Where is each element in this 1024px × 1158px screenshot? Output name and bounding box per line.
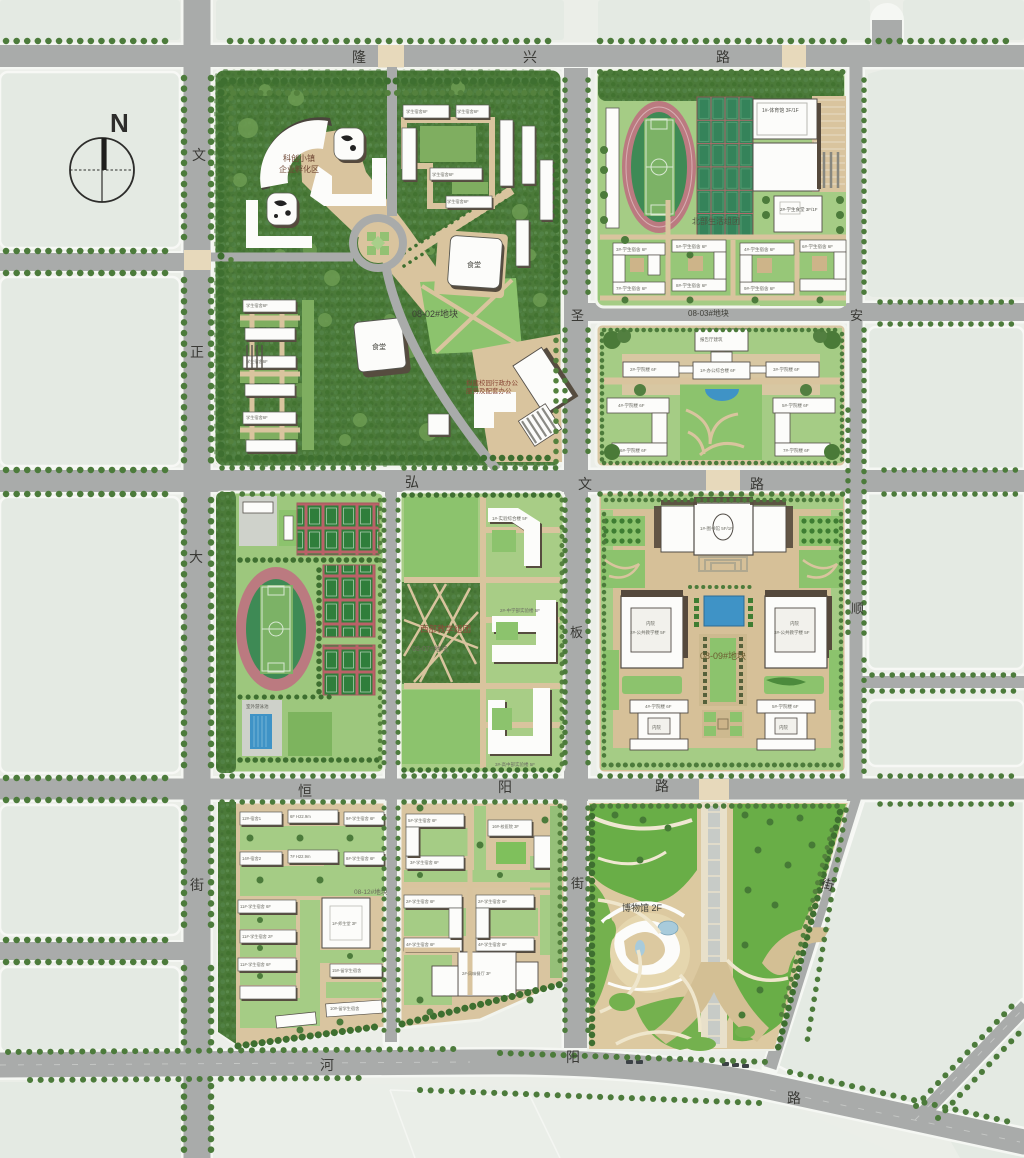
svg-text:4#-学生宿舍 6F: 4#-学生宿舍 6F bbox=[406, 941, 435, 948]
svg-text:隆: 隆 bbox=[352, 49, 366, 65]
svg-text:4#-学院楼 6F: 4#-学院楼 6F bbox=[618, 402, 645, 409]
svg-text:6F H22.9m: 6F H22.9m bbox=[290, 814, 311, 819]
svg-text:4#-学生宿舍 6F: 4#-学生宿舍 6F bbox=[744, 246, 775, 253]
svg-text:08-02#地块: 08-02#地块 bbox=[412, 308, 458, 319]
svg-text:08-07#地块: 08-07#地块 bbox=[412, 644, 448, 653]
svg-text:顺: 顺 bbox=[851, 601, 864, 616]
svg-text:报告厅建筑: 报告厅建筑 bbox=[700, 336, 723, 343]
svg-text:科创小镇: 科创小镇 bbox=[283, 153, 315, 163]
svg-text:学生宿舍6F: 学生宿舍6F bbox=[246, 302, 268, 309]
svg-text:N: N bbox=[110, 108, 129, 138]
svg-text:内院: 内院 bbox=[779, 724, 788, 731]
svg-text:路: 路 bbox=[750, 476, 764, 492]
svg-text:博物馆 2F: 博物馆 2F bbox=[622, 902, 663, 913]
svg-text:街: 街 bbox=[190, 877, 204, 893]
svg-text:4#-学生宿舍 6F: 4#-学生宿舍 6F bbox=[478, 941, 507, 948]
svg-text:拟建校园行政办公: 拟建校园行政办公 bbox=[466, 378, 519, 387]
svg-text:5#-学院楼 6F: 5#-学院楼 6F bbox=[782, 402, 809, 409]
svg-text:3#-学院楼 6F: 3#-学院楼 6F bbox=[773, 366, 800, 373]
svg-text:学生宿舍6F: 学生宿舍6F bbox=[432, 171, 454, 178]
svg-text:15#-留学生宿舍: 15#-留学生宿舍 bbox=[332, 967, 362, 974]
svg-text:11#-学生宿舍 2F: 11#-学生宿舍 2F bbox=[242, 933, 273, 940]
svg-text:2#-中学部实验楼 5F: 2#-中学部实验楼 5F bbox=[500, 607, 540, 614]
svg-text:11#-学生宿舍 6F: 11#-学生宿舍 6F bbox=[240, 961, 271, 968]
svg-text:6#-学生宿舍 6F: 6#-学生宿舍 6F bbox=[802, 243, 833, 250]
svg-text:2#-学生宿舍 6F: 2#-学生宿舍 6F bbox=[406, 898, 435, 905]
svg-text:学生宿舍6F: 学生宿舍6F bbox=[246, 358, 268, 365]
svg-text:14#-宿舍2: 14#-宿舍2 bbox=[242, 855, 262, 862]
svg-text:内院: 内院 bbox=[790, 620, 799, 627]
svg-text:11#-学生宿舍 6F: 11#-学生宿舍 6F bbox=[240, 903, 271, 910]
svg-text:8#-学生宿舍 6F: 8#-学生宿舍 6F bbox=[676, 282, 707, 289]
svg-text:内院: 内院 bbox=[646, 620, 655, 627]
svg-text:学生宿舍6F: 学生宿舍6F bbox=[406, 108, 428, 115]
svg-text:安: 安 bbox=[850, 308, 863, 323]
svg-text:1#-办公综合楼 6F: 1#-办公综合楼 6F bbox=[700, 367, 736, 374]
svg-text:1#-实验综合楼 5F: 1#-实验综合楼 5F bbox=[492, 515, 528, 522]
svg-text:兴: 兴 bbox=[523, 49, 537, 65]
svg-text:内院: 内院 bbox=[652, 724, 661, 731]
svg-text:食堂: 食堂 bbox=[467, 260, 481, 269]
svg-text:企业孵化区: 企业孵化区 bbox=[279, 164, 319, 174]
svg-text:7# H22.9m: 7# H22.9m bbox=[290, 854, 311, 859]
svg-text:路: 路 bbox=[787, 1090, 801, 1106]
svg-text:路: 路 bbox=[716, 49, 730, 65]
svg-text:服务及配套办公: 服务及配套办公 bbox=[466, 386, 512, 395]
svg-text:9#-学生宿舍 6F: 9#-学生宿舍 6F bbox=[346, 815, 375, 822]
svg-text:正: 正 bbox=[190, 344, 204, 360]
svg-text:文: 文 bbox=[192, 147, 206, 163]
svg-text:3#-高中部实验楼 5F: 3#-高中部实验楼 5F bbox=[495, 761, 535, 768]
svg-text:7#-学生宿舍 6F: 7#-学生宿舍 6F bbox=[616, 285, 647, 292]
svg-text:室外游泳池: 室外游泳池 bbox=[246, 703, 269, 710]
svg-text:2#-风味餐厅 3F: 2#-风味餐厅 3F bbox=[462, 970, 491, 977]
svg-text:5#-学生宿舍 6F: 5#-学生宿舍 6F bbox=[676, 243, 707, 250]
svg-text:2#-学院楼 6F: 2#-学院楼 6F bbox=[630, 366, 657, 373]
svg-text:文: 文 bbox=[578, 476, 592, 492]
svg-text:08-09#地块: 08-09#地块 bbox=[700, 650, 746, 661]
svg-text:2#-公共教学楼 5F: 2#-公共教学楼 5F bbox=[630, 629, 666, 636]
svg-text:圣: 圣 bbox=[571, 308, 584, 323]
svg-text:北部生活组团: 北部生活组团 bbox=[692, 216, 740, 226]
svg-text:5#-学生宿舍 6F: 5#-学生宿舍 6F bbox=[408, 817, 437, 824]
svg-text:3#-学生宿舍 6F: 3#-学生宿舍 6F bbox=[410, 859, 439, 866]
svg-text:12#-宿舍1: 12#-宿舍1 bbox=[242, 815, 262, 822]
svg-text:2#-学生食堂 3F/1F: 2#-学生食堂 3F/1F bbox=[780, 206, 818, 213]
svg-text:恒: 恒 bbox=[298, 783, 312, 799]
svg-text:弘: 弘 bbox=[405, 474, 419, 490]
svg-text:6#-学院楼 6F: 6#-学院楼 6F bbox=[620, 447, 647, 454]
svg-text:街: 街 bbox=[571, 876, 584, 891]
svg-text:7#-学院楼 6F: 7#-学院楼 6F bbox=[783, 447, 810, 454]
svg-text:3#-公共教学楼 5F: 3#-公共教学楼 5F bbox=[774, 629, 810, 636]
svg-text:学生宿舍6F: 学生宿舍6F bbox=[447, 198, 469, 205]
svg-text:大: 大 bbox=[189, 549, 203, 565]
svg-text:2#-学生宿舍 6F: 2#-学生宿舍 6F bbox=[478, 898, 507, 905]
svg-text:西部教学组团: 西部教学组团 bbox=[420, 624, 471, 634]
svg-text:1#-图书馆 5F/1F: 1#-图书馆 5F/1F bbox=[700, 525, 733, 532]
svg-text:板: 板 bbox=[570, 625, 583, 640]
svg-text:阳: 阳 bbox=[498, 779, 512, 795]
svg-text:食堂: 食堂 bbox=[372, 342, 386, 351]
svg-text:学生宿舍6F: 学生宿舍6F bbox=[246, 414, 268, 421]
svg-text:1#-体育馆 3F/1F: 1#-体育馆 3F/1F bbox=[762, 107, 799, 114]
svg-text:9#-学生宿舍 6F: 9#-学生宿舍 6F bbox=[744, 285, 775, 292]
svg-text:学生宿舍6F: 学生宿舍6F bbox=[457, 108, 479, 115]
svg-text:1#-师生堂 3F: 1#-师生堂 3F bbox=[332, 920, 357, 927]
svg-text:10#-留学生宿舍: 10#-留学生宿舍 bbox=[330, 1005, 360, 1012]
svg-text:路: 路 bbox=[655, 778, 669, 794]
svg-text:河: 河 bbox=[320, 1057, 334, 1073]
svg-text:08-03#地块: 08-03#地块 bbox=[688, 308, 729, 318]
svg-text:8#-学生宿舍 6F: 8#-学生宿舍 6F bbox=[346, 855, 375, 862]
svg-text:16#-校医院 3F: 16#-校医院 3F bbox=[492, 823, 519, 830]
svg-text:阳: 阳 bbox=[566, 1049, 580, 1065]
svg-text:4#-学院楼 6F: 4#-学院楼 6F bbox=[645, 703, 672, 710]
svg-text:5#-学院楼 6F: 5#-学院楼 6F bbox=[772, 703, 799, 710]
svg-text:3#-学生宿舍 6F: 3#-学生宿舍 6F bbox=[616, 246, 647, 253]
